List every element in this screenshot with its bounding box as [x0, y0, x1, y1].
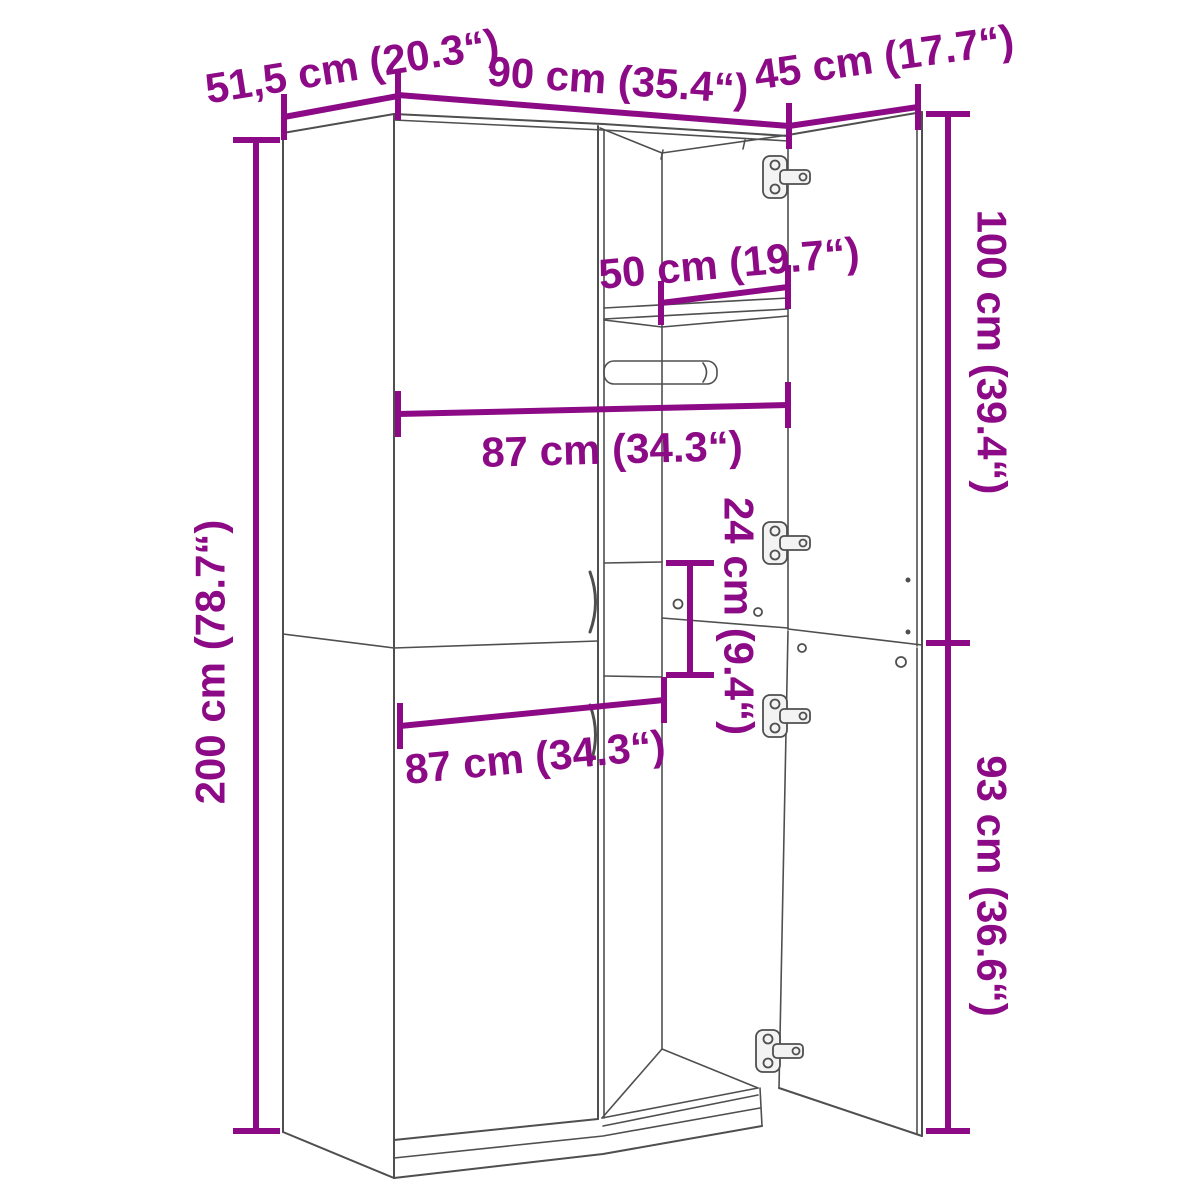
hinge-icon [763, 695, 810, 737]
dimension-inner-width-upper-label: 87 cm (34.3“) [481, 422, 744, 476]
hinge-icon [763, 156, 810, 198]
dimension-inner-width-upper: 87 cm (34.3“) [398, 382, 788, 476]
dimension-lower-door-height-label: 93 cm (36.6“) [969, 755, 1016, 1016]
hinges [756, 156, 810, 1072]
dimension-door-width-label: 45 cm (17.7“) [751, 16, 1016, 99]
dimensions: 51,5 cm (20.3“) 90 cm (35.4“) 45 cm (17.… [187, 16, 1017, 1131]
hinge-icon [763, 522, 810, 564]
dimension-upper-door-height: 100 cm (39.4“) [926, 114, 1016, 643]
dimension-diagram: 51,5 cm (20.3“) 90 cm (35.4“) 45 cm (17.… [0, 0, 1200, 1200]
hanging-rail [604, 361, 717, 384]
interior-shelf [604, 298, 788, 327]
dimension-middle-height-label: 24 cm (9.4“) [716, 497, 763, 735]
dimension-inner-width-lower-label: 87 cm (34.3“) [403, 721, 668, 793]
wardrobe-diagram-svg: 51,5 cm (20.3“) 90 cm (35.4“) 45 cm (17.… [0, 0, 1200, 1200]
dimension-inner-width-top: 50 cm (19.7“) [597, 228, 862, 325]
open-door-lower [779, 631, 922, 1136]
dimension-upper-door-height-label: 100 cm (39.4“) [969, 210, 1016, 495]
door-handle-upper [590, 572, 596, 632]
dimension-middle-height: 24 cm (9.4“) [666, 497, 763, 735]
dimension-inner-width-lower: 87 cm (34.3“) [400, 677, 667, 793]
dimension-lower-door-height: 93 cm (36.6“) [926, 643, 1016, 1131]
dimension-inner-width-top-label: 50 cm (19.7“) [597, 228, 862, 298]
dimension-total-height-label: 200 cm (78.7“) [187, 520, 234, 805]
hinge-icon [756, 1030, 803, 1072]
dimension-total-height: 200 cm (78.7“) [187, 140, 281, 1131]
open-door-upper [788, 112, 922, 647]
